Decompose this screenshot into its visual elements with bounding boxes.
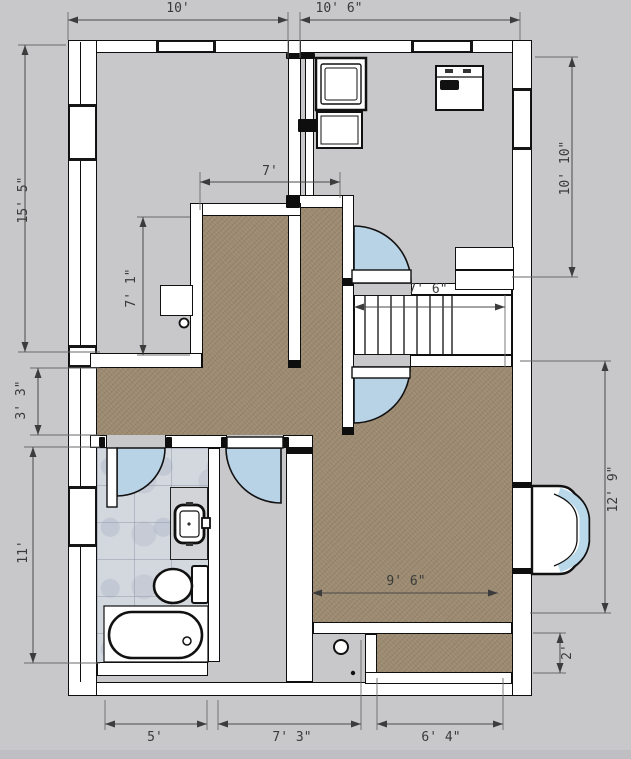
small-dot bbox=[351, 671, 355, 675]
window-left-1 bbox=[69, 104, 96, 161]
wall-cap bbox=[342, 427, 354, 435]
wall-bathroom-south bbox=[97, 662, 208, 676]
wall-cap bbox=[288, 360, 301, 368]
vanity-counter bbox=[170, 487, 208, 560]
dim-top-left: 10' bbox=[158, 2, 198, 16]
chimney-chase bbox=[160, 285, 193, 316]
bedroom-carpet-floor bbox=[203, 216, 288, 368]
stairwell bbox=[354, 295, 512, 355]
living-room-carpet-floor-2 bbox=[313, 435, 354, 622]
window-top-1 bbox=[156, 41, 216, 52]
dim-bottom-left: 5' bbox=[135, 731, 175, 745]
wall-livingroom-bottom bbox=[313, 622, 512, 634]
window-right-1 bbox=[513, 88, 531, 150]
closet-carpet-floor bbox=[377, 634, 512, 672]
wall-bathroom-right bbox=[208, 448, 220, 662]
dim-top-right: 10' 6" bbox=[311, 2, 367, 16]
wall-hall-bottom-b bbox=[165, 435, 227, 448]
appliance-sink-base bbox=[317, 112, 362, 148]
dim-bottom-mid: 7' 3" bbox=[264, 731, 320, 745]
door-jamb bbox=[283, 437, 289, 448]
dim-big-room-width: 9' 6" bbox=[378, 575, 434, 589]
wall-closet-bottom bbox=[365, 672, 512, 684]
bay-window bbox=[532, 486, 589, 574]
door-jamb bbox=[221, 437, 227, 448]
window-top-2 bbox=[411, 41, 473, 52]
wall-stairs-bottom bbox=[410, 355, 512, 367]
wall-bedroom-top bbox=[190, 203, 301, 216]
dim-left-upper: 15' 5" bbox=[17, 172, 31, 228]
dim-right-lower: 12' 9" bbox=[607, 461, 621, 517]
dim-bottom-right: 6' 4" bbox=[413, 731, 469, 745]
floor-drain bbox=[334, 640, 348, 654]
wall-cap bbox=[286, 448, 313, 454]
dim-room-width: 7' bbox=[250, 165, 290, 179]
door-jamb bbox=[166, 437, 172, 448]
bottom-edge-strip bbox=[0, 750, 631, 759]
door-panel-kitchen bbox=[352, 270, 411, 283]
dim-room-height: 7' 1" bbox=[125, 260, 139, 316]
appliance-washer bbox=[316, 58, 366, 110]
bay-jamb bbox=[512, 568, 532, 574]
door-swing-kitchen bbox=[354, 226, 411, 283]
wall-cap bbox=[286, 195, 300, 208]
knob bbox=[180, 319, 189, 328]
door-swing-den bbox=[226, 448, 281, 503]
appliances bbox=[316, 58, 483, 148]
bay-window-glass bbox=[559, 492, 584, 568]
door-latch bbox=[298, 119, 320, 132]
wall-cap bbox=[342, 278, 354, 286]
corridor-carpet-floor bbox=[301, 208, 342, 435]
dim-left-mid: 3' 3" bbox=[15, 372, 29, 428]
door-panel-den bbox=[227, 437, 283, 448]
cabinet-shelf-line bbox=[455, 269, 514, 271]
dim-left-lower: 11' bbox=[17, 532, 31, 572]
window-left-3 bbox=[69, 486, 96, 547]
dim-right-closet: 2' bbox=[561, 638, 575, 666]
bay-jamb bbox=[512, 482, 532, 488]
hallway-carpet-floor bbox=[97, 368, 301, 435]
wall-cap bbox=[286, 53, 315, 59]
wall-hall-top bbox=[90, 353, 202, 368]
wall-divider-lower bbox=[286, 448, 313, 682]
door-jamb bbox=[99, 437, 105, 448]
floor-plan: 10' 10' 6" 15' 5" 3' 3" 11' 10' 10" 12' … bbox=[0, 0, 631, 759]
appliance-dryer bbox=[436, 66, 483, 110]
dim-right-upper: 10' 10" bbox=[559, 136, 573, 200]
wall-corridor-right bbox=[342, 195, 354, 435]
dim-stairs-width: 7' 6" bbox=[400, 283, 456, 297]
wall-bottom bbox=[68, 682, 532, 696]
